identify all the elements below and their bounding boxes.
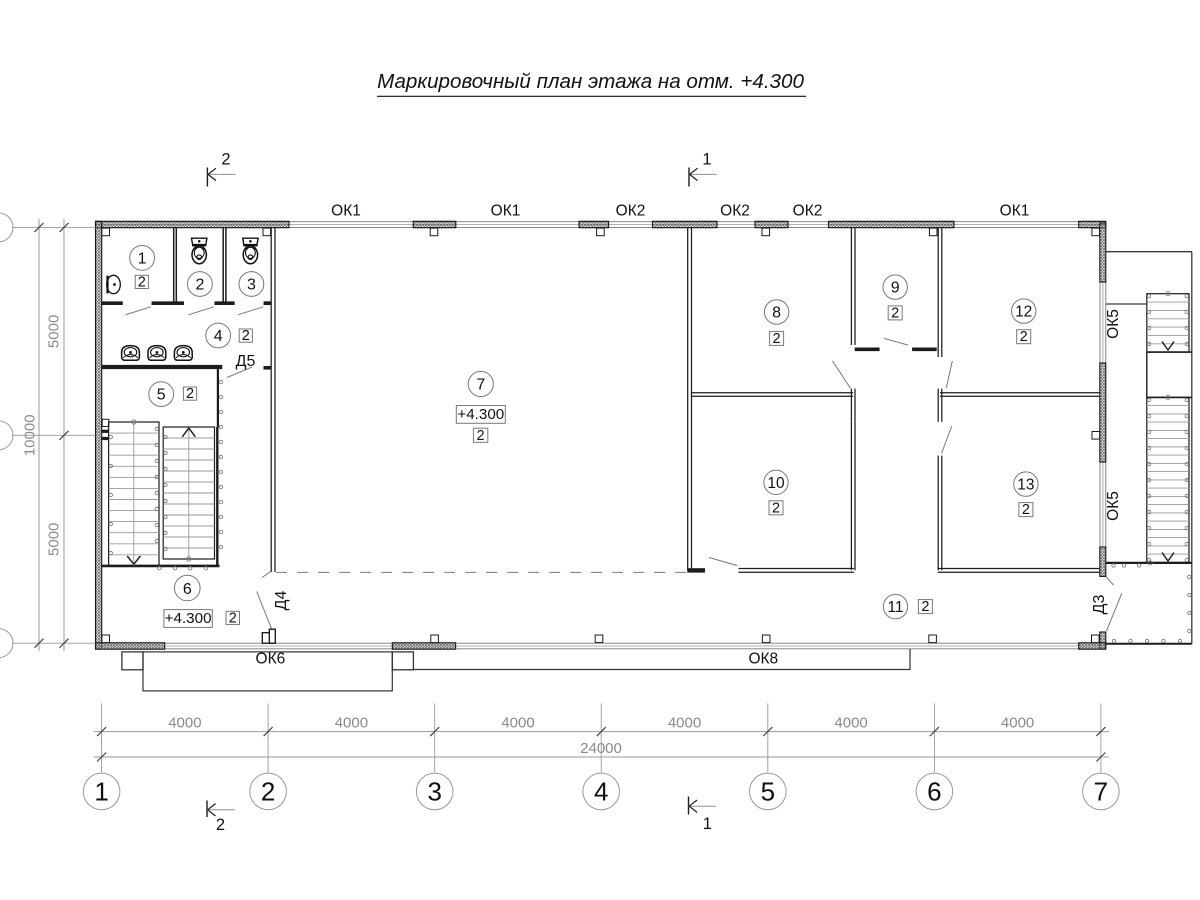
svg-text:2: 2 — [772, 500, 780, 516]
svg-text:+4.300: +4.300 — [457, 406, 504, 423]
svg-text:4: 4 — [214, 328, 223, 345]
svg-text:9: 9 — [891, 280, 900, 297]
svg-text:10: 10 — [767, 475, 785, 492]
svg-text:6: 6 — [183, 581, 192, 598]
svg-text:ОК6: ОК6 — [256, 651, 286, 668]
svg-text:ОК8: ОК8 — [748, 651, 778, 668]
svg-text:2: 2 — [221, 151, 230, 169]
svg-text:10000: 10000 — [22, 414, 39, 456]
svg-text:5: 5 — [157, 387, 166, 404]
svg-text:7: 7 — [476, 377, 485, 394]
svg-text:2: 2 — [216, 816, 225, 834]
svg-text:12: 12 — [1015, 304, 1032, 321]
svg-text:13: 13 — [1017, 477, 1034, 494]
svg-text:8: 8 — [772, 305, 781, 322]
svg-text:2: 2 — [477, 428, 485, 444]
svg-text:1: 1 — [702, 151, 711, 169]
svg-text:6: 6 — [927, 777, 941, 807]
svg-text:ОК2: ОК2 — [793, 203, 823, 220]
svg-text:ОК5: ОК5 — [1105, 491, 1122, 521]
svg-text:ОК1: ОК1 — [491, 203, 521, 220]
svg-text:4: 4 — [594, 777, 608, 807]
svg-text:1: 1 — [703, 815, 712, 833]
svg-text:Д5: Д5 — [236, 353, 256, 370]
svg-text:4000: 4000 — [168, 715, 201, 732]
svg-text:5000: 5000 — [46, 315, 63, 348]
svg-text:1: 1 — [138, 251, 147, 268]
svg-text:2: 2 — [242, 328, 250, 344]
svg-text:3: 3 — [247, 277, 256, 294]
svg-text:ОК1: ОК1 — [331, 203, 361, 220]
svg-text:2: 2 — [261, 777, 275, 807]
svg-text:2: 2 — [229, 610, 237, 626]
svg-text:7: 7 — [1094, 777, 1108, 807]
svg-text:4000: 4000 — [335, 715, 368, 732]
svg-text:2: 2 — [195, 277, 204, 294]
svg-text:4000: 4000 — [668, 715, 701, 732]
svg-text:3: 3 — [427, 777, 441, 807]
svg-text:2: 2 — [186, 386, 194, 402]
svg-text:Маркировочный план этажа на от: Маркировочный план этажа на отм. +4.300 — [377, 70, 804, 93]
svg-text:4000: 4000 — [1001, 715, 1034, 732]
svg-text:ОК5: ОК5 — [1105, 309, 1122, 339]
svg-text:+4.300: +4.300 — [165, 610, 212, 627]
svg-text:ОК2: ОК2 — [616, 203, 646, 220]
svg-text:4000: 4000 — [834, 715, 867, 732]
svg-text:11: 11 — [887, 599, 903, 616]
svg-text:Д4: Д4 — [273, 591, 290, 611]
svg-text:2: 2 — [921, 599, 929, 615]
svg-text:1: 1 — [94, 777, 108, 807]
svg-text:2: 2 — [773, 331, 781, 347]
svg-text:2: 2 — [891, 305, 899, 321]
svg-text:ОК2: ОК2 — [720, 203, 750, 220]
svg-text:4000: 4000 — [501, 715, 534, 732]
svg-text:5: 5 — [761, 777, 775, 807]
svg-text:24000: 24000 — [580, 740, 622, 757]
svg-text:5000: 5000 — [46, 523, 63, 556]
svg-text:2: 2 — [1022, 502, 1030, 518]
svg-text:2: 2 — [138, 274, 146, 290]
svg-text:Д3: Д3 — [1091, 595, 1108, 615]
svg-text:2: 2 — [1020, 329, 1028, 345]
svg-text:ОК1: ОК1 — [1000, 203, 1030, 220]
